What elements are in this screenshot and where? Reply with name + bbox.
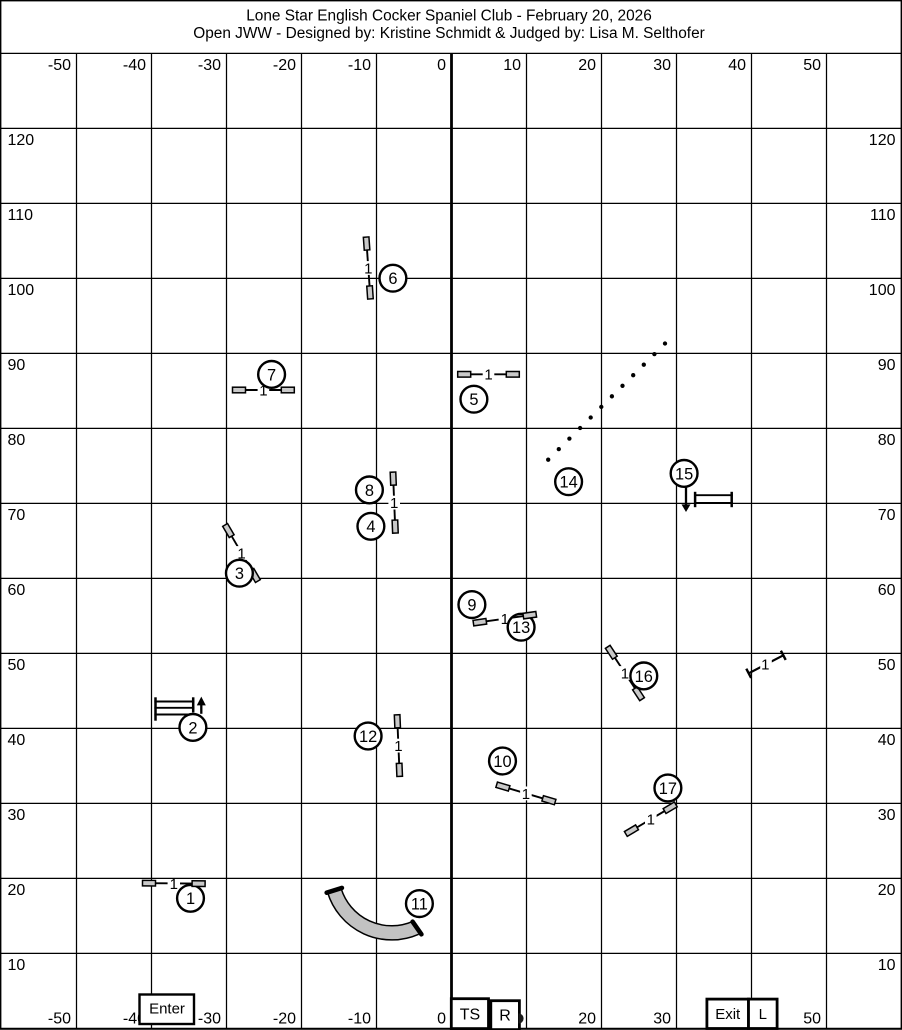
svg-text:40: 40 xyxy=(728,57,746,74)
svg-text:30: 30 xyxy=(653,1010,671,1027)
svg-text:40: 40 xyxy=(8,732,26,749)
svg-text:-20: -20 xyxy=(273,1010,296,1027)
svg-text:Exit: Exit xyxy=(715,1006,741,1023)
svg-text:Enter: Enter xyxy=(149,1001,185,1018)
svg-text:120: 120 xyxy=(869,132,896,149)
svg-text:10: 10 xyxy=(503,57,521,74)
svg-text:1: 1 xyxy=(761,657,769,674)
svg-text:1: 1 xyxy=(390,495,398,512)
svg-text:1: 1 xyxy=(364,260,372,277)
svg-text:3: 3 xyxy=(235,565,244,583)
svg-text:1: 1 xyxy=(394,738,402,755)
svg-text:1: 1 xyxy=(647,812,655,829)
svg-text:100: 100 xyxy=(869,282,896,299)
svg-text:Open JWW - Designed by: Kristi: Open JWW - Designed by: Kristine Schmidt… xyxy=(193,25,705,42)
svg-text:10: 10 xyxy=(878,957,896,974)
svg-text:1: 1 xyxy=(501,611,509,628)
svg-text:2: 2 xyxy=(188,719,197,737)
svg-text:60: 60 xyxy=(878,582,896,599)
svg-text:TS: TS xyxy=(460,1007,480,1024)
svg-text:4: 4 xyxy=(366,518,375,536)
svg-text:8: 8 xyxy=(365,482,374,500)
svg-text:80: 80 xyxy=(878,432,896,449)
svg-text:110: 110 xyxy=(8,207,34,224)
svg-text:R: R xyxy=(499,1008,511,1025)
svg-text:Lone Star English Cocker Spani: Lone Star English Cocker Spaniel Club - … xyxy=(246,8,652,25)
svg-text:70: 70 xyxy=(878,507,896,524)
svg-text:6: 6 xyxy=(388,270,397,288)
svg-text:-10: -10 xyxy=(348,57,371,74)
svg-text:-50: -50 xyxy=(48,57,71,74)
svg-text:-40: -40 xyxy=(123,57,146,74)
svg-text:12: 12 xyxy=(359,728,377,746)
svg-text:30: 30 xyxy=(8,807,26,824)
svg-text:50: 50 xyxy=(803,57,821,74)
svg-text:120: 120 xyxy=(8,132,35,149)
svg-text:-30: -30 xyxy=(198,57,221,74)
svg-text:80: 80 xyxy=(8,432,26,449)
svg-text:L: L xyxy=(759,1006,767,1023)
svg-text:-20: -20 xyxy=(273,57,296,74)
svg-text:1: 1 xyxy=(522,786,530,803)
svg-text:90: 90 xyxy=(878,357,896,374)
svg-text:90: 90 xyxy=(8,357,26,374)
svg-text:5: 5 xyxy=(469,391,478,409)
svg-text:30: 30 xyxy=(878,807,896,824)
svg-text:-50: -50 xyxy=(48,1010,71,1027)
svg-text:1: 1 xyxy=(621,665,629,682)
svg-text:11: 11 xyxy=(411,896,428,914)
svg-text:20: 20 xyxy=(578,57,596,74)
svg-text:40: 40 xyxy=(878,732,896,749)
svg-text:-10: -10 xyxy=(348,1010,371,1027)
svg-text:1: 1 xyxy=(170,876,178,893)
svg-text:100: 100 xyxy=(8,282,35,299)
svg-text:16: 16 xyxy=(635,668,653,686)
svg-text:9: 9 xyxy=(467,597,476,615)
svg-text:0: 0 xyxy=(437,1010,446,1027)
svg-text:50: 50 xyxy=(803,1010,821,1027)
svg-text:0: 0 xyxy=(437,57,446,74)
svg-text:70: 70 xyxy=(8,507,26,524)
svg-text:14: 14 xyxy=(559,474,577,492)
svg-text:20: 20 xyxy=(8,882,26,899)
svg-text:50: 50 xyxy=(878,657,896,674)
svg-text:10: 10 xyxy=(493,753,511,771)
svg-text:20: 20 xyxy=(878,882,896,899)
svg-text:10: 10 xyxy=(8,957,26,974)
svg-text:7: 7 xyxy=(267,366,276,384)
svg-text:-30: -30 xyxy=(198,1010,221,1027)
svg-text:15: 15 xyxy=(675,465,693,483)
svg-text:60: 60 xyxy=(8,582,26,599)
svg-text:1: 1 xyxy=(484,367,492,384)
svg-text:30: 30 xyxy=(653,57,671,74)
svg-text:50: 50 xyxy=(8,657,26,674)
svg-text:17: 17 xyxy=(659,780,677,798)
svg-text:1: 1 xyxy=(186,890,195,908)
svg-text:20: 20 xyxy=(578,1010,596,1027)
svg-text:13: 13 xyxy=(512,619,530,637)
svg-text:110: 110 xyxy=(870,207,896,224)
